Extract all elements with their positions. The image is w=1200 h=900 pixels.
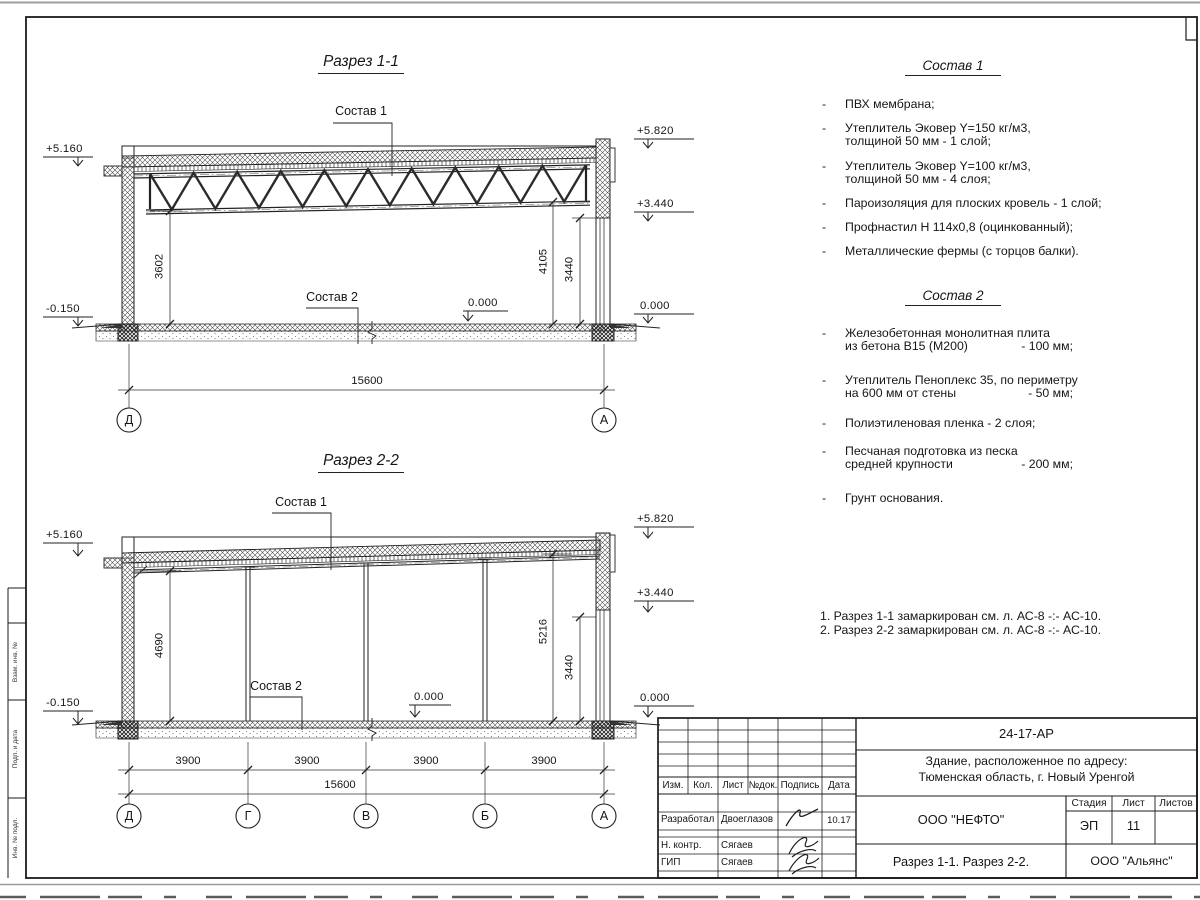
- col-list: Лист: [718, 780, 748, 791]
- format-box: [1186, 17, 1197, 40]
- sostav2-callout: Состав 2: [292, 290, 372, 304]
- sand-bed: [96, 331, 636, 341]
- level-0-floor: 0.000: [414, 691, 444, 703]
- bullet-dash: -: [822, 374, 845, 387]
- signatures: [786, 809, 819, 874]
- list-item: -Утеплитель Пеноплекс 35, по периметруна…: [822, 374, 1078, 401]
- axis-label: Д: [117, 809, 141, 823]
- level-5160: +5.160: [46, 529, 83, 541]
- bullet-dash: -: [822, 445, 845, 458]
- sostav1-heading: Состав 1: [905, 58, 1001, 76]
- floor-slab: [96, 721, 636, 728]
- bullet-dash: -: [822, 417, 845, 430]
- level-m0150: -0.150: [46, 697, 80, 709]
- fascia: [610, 148, 615, 182]
- bullet-dash: -: [822, 221, 845, 234]
- axis-label: Д: [117, 413, 141, 427]
- role-gip: ГИП: [661, 857, 680, 868]
- sostav2-callout: Состав 2: [236, 679, 316, 693]
- margin-label: Инв. № подл.: [12, 798, 22, 878]
- dim-5216: 5216: [538, 597, 551, 667]
- dim-3900: 3900: [158, 755, 218, 767]
- role-developed: Разработал: [661, 814, 714, 825]
- bullet-dash: -: [822, 98, 845, 111]
- col-ndok: №док.: [748, 780, 778, 791]
- dim-4690: 4690: [154, 611, 167, 681]
- contractor-name: ООО "Альянс": [1066, 854, 1197, 868]
- bullet-dash: -: [822, 245, 845, 258]
- level-0-floor: 0.000: [468, 297, 498, 309]
- drawing-sheet: Разрез 1-1 Состав 1 Состав 2 +5.160 -0.1…: [0, 0, 1200, 900]
- truss: [134, 165, 590, 214]
- name-gip: Сягаев: [721, 857, 753, 868]
- parapet-ledge: [104, 558, 122, 568]
- object-address-line2: Тюменская область, г. Новый Уренгой: [856, 770, 1197, 784]
- name-ncontrol: Сягаев: [721, 840, 753, 851]
- bullet-dash: -: [822, 327, 845, 340]
- level-5820: +5.820: [637, 125, 674, 137]
- axis-dim: [117, 344, 616, 432]
- note-line: 1. Разрез 1-1 замаркирован см. л. АС-8 -…: [820, 609, 1101, 623]
- col-data: Дата: [822, 780, 856, 791]
- bullet-dash: -: [822, 160, 845, 173]
- level-3440: +3.440: [637, 198, 674, 210]
- margin-label: Подп. и дата: [12, 709, 22, 789]
- bullet-dash: -: [822, 122, 845, 135]
- stage-value: ЭП: [1066, 818, 1112, 833]
- list-item: -Профнастил Н 114х0,8 (оцинкованный);: [822, 221, 1073, 234]
- dim-3900: 3900: [396, 755, 456, 767]
- dim-3440: 3440: [564, 235, 577, 305]
- sheet-title: Разрез 1-1. Разрез 2-2.: [856, 854, 1066, 869]
- dim-3900: 3900: [514, 755, 574, 767]
- vertical-dims: [150, 198, 596, 328]
- dim-3900: 3900: [277, 755, 337, 767]
- level-0: 0.000: [640, 692, 670, 704]
- dim-15600: 15600: [327, 375, 407, 387]
- margin-label: Взам. инв. №: [12, 622, 22, 702]
- company-name: ООО "НЕФТО": [856, 812, 1066, 827]
- list-item: -Песчаная подготовка из пескасредней кру…: [822, 445, 1073, 472]
- dim-3440: 3440: [564, 633, 577, 703]
- col-podpis: Подпись: [778, 780, 822, 791]
- col-kol: Кол.: [688, 780, 718, 791]
- fascia: [610, 535, 615, 572]
- leader-sostav1: [333, 123, 392, 176]
- axis-label: В: [354, 809, 378, 823]
- axis-label: Б: [473, 809, 497, 823]
- level-5160: +5.160: [46, 143, 83, 155]
- date-value: 10.17: [822, 815, 856, 826]
- sostav1-callout: Состав 1: [321, 104, 401, 118]
- sheet-label: Лист: [1112, 798, 1155, 809]
- list-item: -Железобетонная монолитная плитаиз бетон…: [822, 327, 1073, 354]
- section-2-title: Разрез 2-2: [318, 452, 404, 473]
- sand-bed: [96, 728, 636, 738]
- sheets-label: Листов: [1155, 798, 1197, 809]
- role-ncontrol: Н. контр.: [661, 840, 701, 851]
- sostav1-callout: Состав 1: [261, 495, 341, 509]
- list-item: -Грунт основания.: [822, 492, 943, 505]
- floor-slab: [96, 324, 636, 331]
- list-item: -Полиэтиленовая пленка - 2 слоя;: [822, 417, 1035, 430]
- stage-label: Стадия: [1066, 798, 1112, 809]
- axis-label: А: [592, 413, 616, 427]
- level-5820: +5.820: [637, 513, 674, 525]
- section-1-title: Разрез 1-1: [318, 53, 404, 74]
- dim-15600: 15600: [300, 779, 380, 791]
- sostav2-heading: Состав 2: [905, 288, 1001, 306]
- axis-label: А: [592, 809, 616, 823]
- dim-3602: 3602: [154, 232, 167, 302]
- level-0: 0.000: [640, 300, 670, 312]
- list-item: -Пароизоляция для плоских кровель - 1 сл…: [822, 197, 1102, 210]
- col-izm: Изм.: [658, 780, 688, 791]
- name-developed: Двоеглазов: [721, 814, 773, 825]
- doc-number: 24-17-АР: [856, 726, 1197, 741]
- dim-4105: 4105: [538, 227, 551, 297]
- level-m0150: -0.150: [46, 303, 80, 315]
- level-3440: +3.440: [637, 587, 674, 599]
- note-line: 2. Разрез 2-2 замаркирован см. л. АС-8 -…: [820, 623, 1101, 637]
- bullet-dash: -: [822, 197, 845, 210]
- axis-label: Г: [236, 809, 260, 823]
- bullet-dash: -: [822, 492, 845, 505]
- object-address-line1: Здание, расположенное по адресу:: [856, 754, 1197, 768]
- list-item: -Утеплитель Эковер Y=150 кг/м3,толщиной …: [822, 122, 1031, 149]
- list-item: -Утеплитель Эковер Y=100 кг/м3,толщиной …: [822, 160, 1031, 187]
- list-item: -Металлические фермы (с торцов балки).: [822, 245, 1079, 258]
- sheet-number: 11: [1112, 818, 1155, 833]
- parapet-ledge: [104, 166, 122, 176]
- list-item: -ПВХ мембрана;: [822, 98, 935, 111]
